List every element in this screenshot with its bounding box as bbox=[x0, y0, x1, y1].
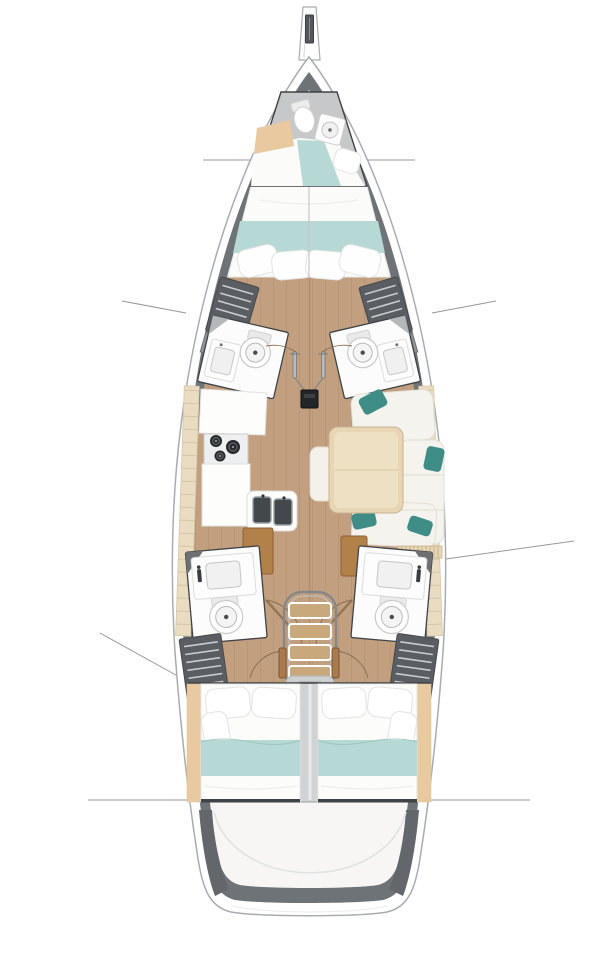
aft-cabin-starboard bbox=[318, 684, 431, 803]
owner-cabin-bed bbox=[228, 186, 390, 281]
bowsprit bbox=[299, 7, 320, 60]
mast-post bbox=[301, 390, 318, 408]
stove-icon bbox=[204, 434, 248, 464]
floorplan-svg bbox=[0, 0, 606, 960]
salon-table bbox=[329, 427, 403, 513]
boat-floorplan bbox=[0, 0, 606, 960]
crew-cabin bbox=[251, 92, 367, 186]
galley-sink-icon bbox=[247, 491, 297, 531]
aft-cabin-port bbox=[187, 684, 300, 803]
